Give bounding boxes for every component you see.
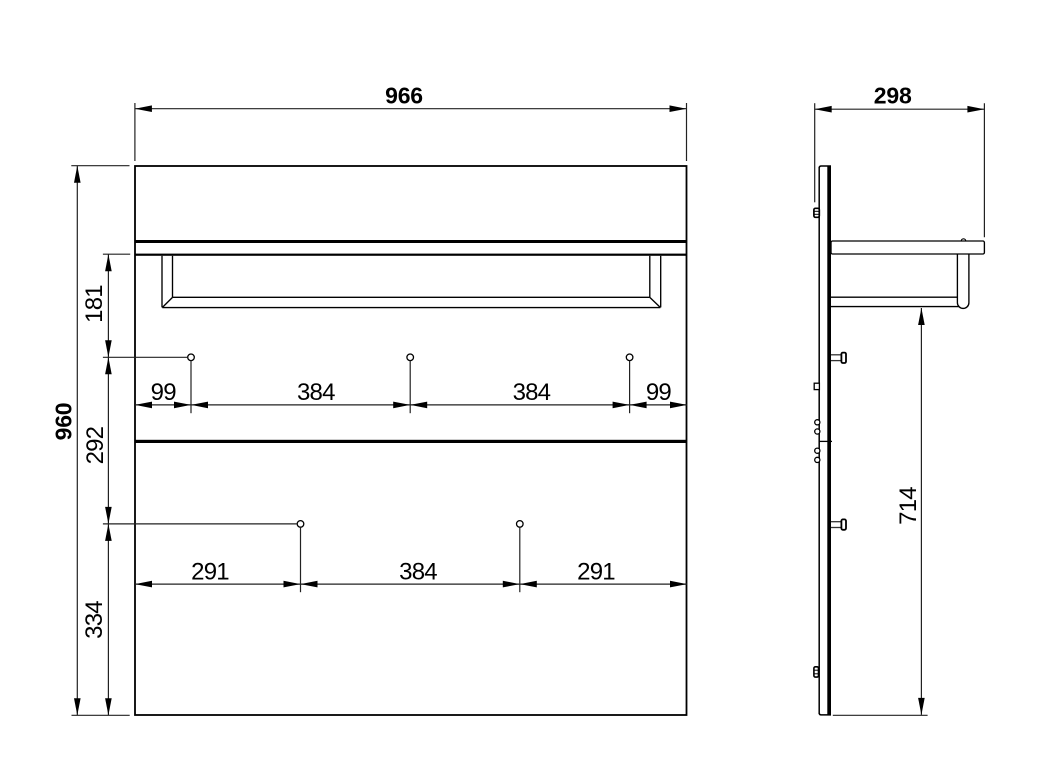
svg-text:384: 384 xyxy=(399,558,437,585)
svg-text:384: 384 xyxy=(513,379,551,406)
svg-text:298: 298 xyxy=(874,83,912,109)
svg-text:334: 334 xyxy=(81,601,108,639)
svg-text:99: 99 xyxy=(646,379,672,406)
svg-text:966: 966 xyxy=(385,83,423,109)
svg-text:292: 292 xyxy=(82,426,109,464)
svg-text:291: 291 xyxy=(191,558,229,585)
svg-text:384: 384 xyxy=(297,379,335,406)
svg-text:99: 99 xyxy=(151,379,177,406)
svg-text:960: 960 xyxy=(50,403,76,441)
svg-text:714: 714 xyxy=(895,487,922,525)
svg-text:181: 181 xyxy=(81,285,108,323)
svg-text:291: 291 xyxy=(577,558,615,585)
